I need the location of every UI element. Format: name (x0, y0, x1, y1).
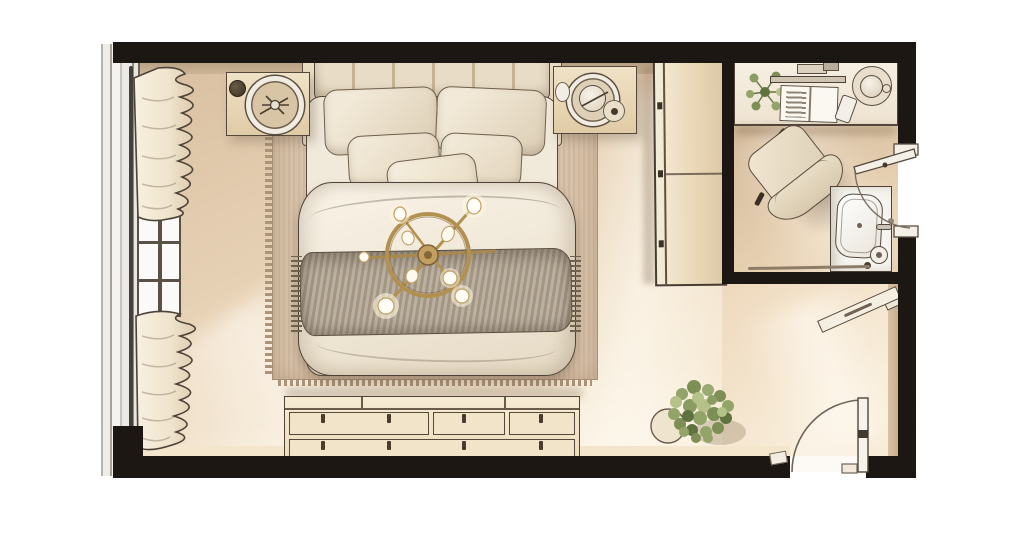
drawer-handle (462, 441, 466, 450)
desk-tray-handle (882, 84, 891, 93)
magazine-text-right (813, 91, 834, 120)
wardrobe-hinge (658, 170, 663, 177)
wardrobe (653, 60, 727, 287)
dish-small-right-dot (611, 108, 618, 115)
rug-fringe-bottom (278, 380, 592, 386)
wardrobe-door-split (664, 173, 724, 176)
drawer-handle (387, 441, 391, 450)
door-handle (883, 163, 888, 168)
drawer-handle (539, 414, 543, 423)
drawer-handle (321, 441, 325, 450)
wall-bottom (137, 456, 790, 478)
drawer-handle (462, 414, 466, 423)
dresser-drawer (289, 412, 429, 435)
drawer-handle (387, 414, 391, 423)
dresser-top-divider (504, 397, 506, 408)
wardrobe-hinge (657, 102, 662, 109)
speaker-block (823, 62, 839, 71)
wall-corner-bottom-left (113, 426, 143, 478)
door-leaf (854, 149, 916, 174)
dresser (284, 396, 580, 462)
apple-decor (229, 80, 246, 97)
wall-right-upper (898, 42, 916, 154)
dresser-top-divider (361, 397, 363, 408)
dresser-drawer (433, 412, 505, 435)
door-stop (842, 464, 857, 473)
monitor-bar (770, 76, 846, 83)
curtain-top (128, 64, 214, 234)
paper-roll-core (876, 252, 882, 258)
floorplan-canvas (0, 0, 1024, 559)
partition-wall-vertical (722, 42, 734, 284)
ceiling-light-chandelier (352, 190, 508, 322)
partition-wall-horizontal (722, 272, 898, 284)
floor-plant (638, 372, 750, 468)
door-latch (858, 430, 868, 438)
drawer-handle (539, 441, 543, 450)
wardrobe-hinge (659, 240, 664, 247)
dish-small-left (555, 82, 570, 102)
drawer-handle (321, 414, 325, 423)
dresser-top-seam (285, 408, 579, 410)
wall-top (113, 42, 916, 63)
entry-door (784, 390, 904, 476)
ensuite-door (840, 140, 920, 240)
desk-tray-jug (860, 75, 883, 98)
tray-decor-sprig (256, 88, 294, 122)
